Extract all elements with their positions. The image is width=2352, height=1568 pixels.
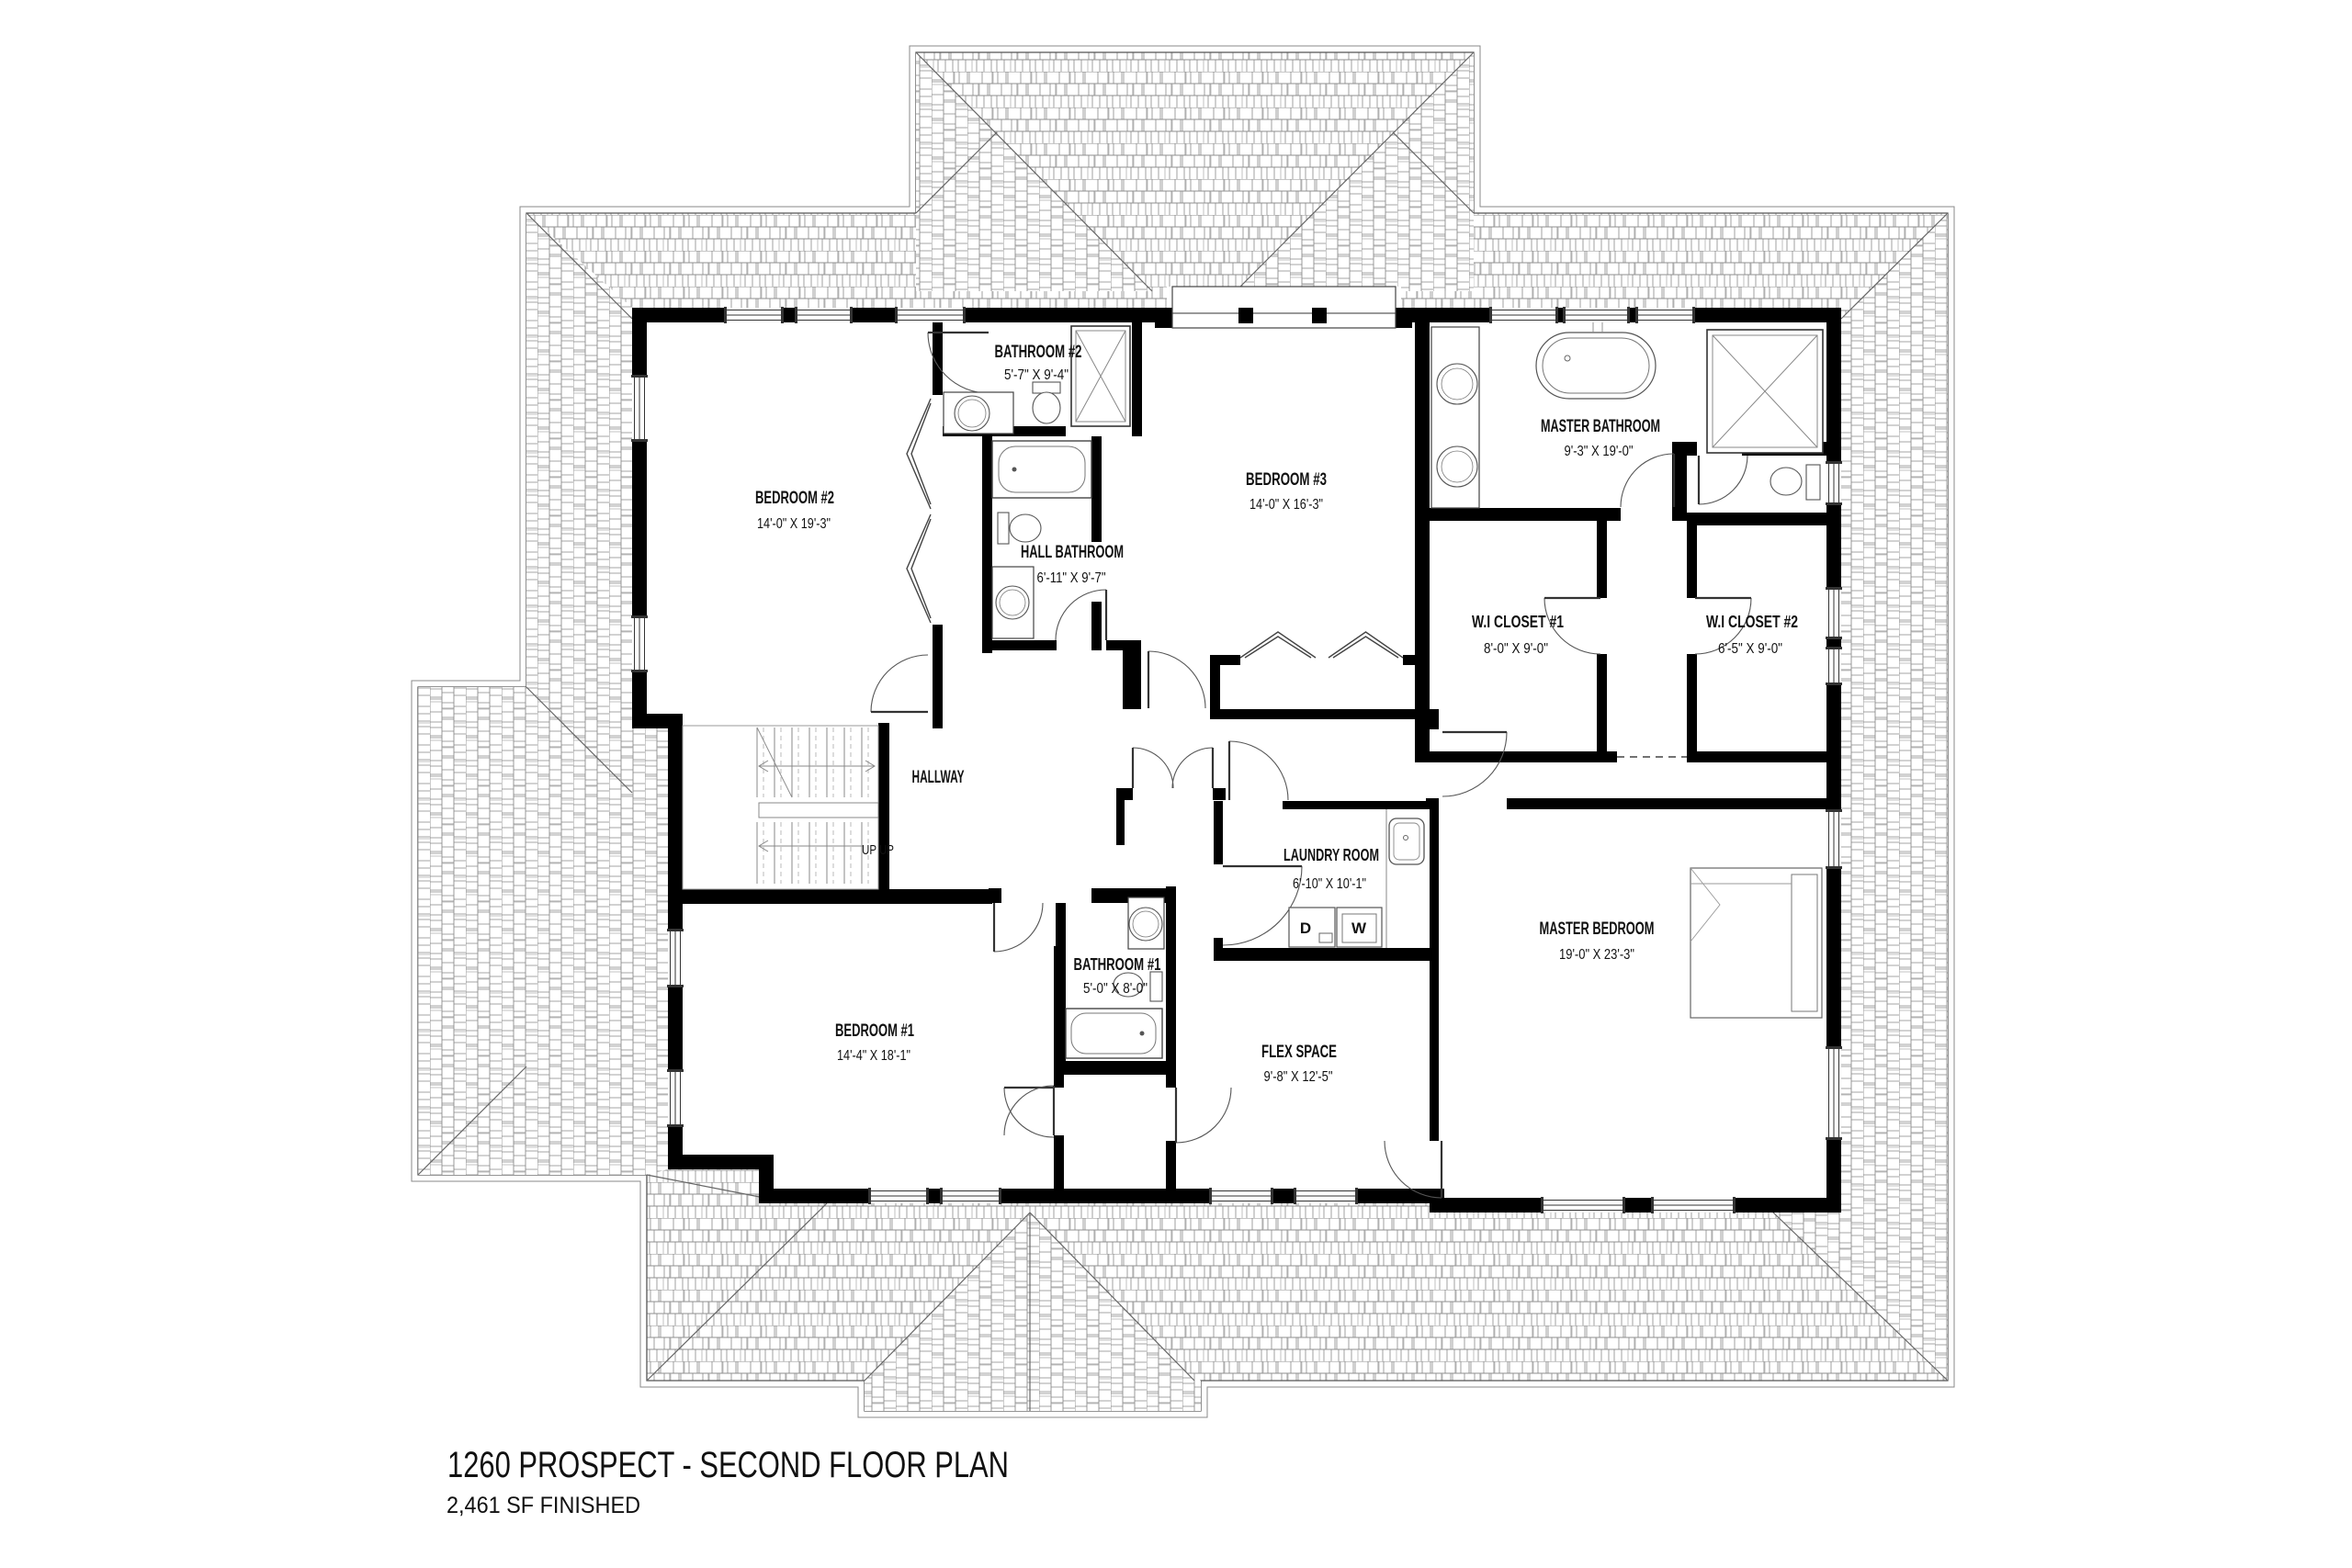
svg-text:8'-0" X 9'-0": 8'-0" X 9'-0" [1484, 641, 1548, 657]
svg-text:6'-10" X 10'-1": 6'-10" X 10'-1" [1293, 876, 1366, 892]
svg-text:5'-7" X 9'-4": 5'-7" X 9'-4" [1004, 367, 1069, 383]
svg-text:BATHROOM #2: BATHROOM #2 [995, 343, 1082, 362]
svg-text:BEDROOM #2: BEDROOM #2 [755, 489, 834, 508]
svg-text:9'-8" X 12'-5": 9'-8" X 12'-5" [1264, 1069, 1333, 1085]
svg-text:UP UP: UP UP [862, 842, 894, 858]
svg-text:6'-5" X 9'-0": 6'-5" X 9'-0" [1718, 641, 1782, 657]
svg-text:MASTER BEDROOM: MASTER BEDROOM [1540, 919, 1655, 939]
svg-text:FLEX SPACE: FLEX SPACE [1261, 1043, 1337, 1062]
svg-text:14'-0" X 16'-3": 14'-0" X 16'-3" [1249, 497, 1323, 513]
svg-text:9'-3" X 19'-0": 9'-3" X 19'-0" [1565, 444, 1634, 459]
svg-text:MASTER BATHROOM: MASTER BATHROOM [1541, 417, 1660, 436]
svg-text:6'-11" X 9'-7": 6'-11" X 9'-7" [1037, 570, 1106, 586]
svg-text:W: W [1351, 919, 1367, 937]
svg-text:19'-0" X 23'-3": 19'-0" X 23'-3" [1559, 947, 1634, 963]
svg-text:HALL BATHROOM: HALL BATHROOM [1021, 543, 1124, 562]
svg-text:W.I CLOSET #2: W.I CLOSET #2 [1706, 613, 1798, 631]
svg-text:BEDROOM #1: BEDROOM #1 [835, 1021, 914, 1041]
svg-text:BATHROOM #1: BATHROOM #1 [1074, 955, 1161, 974]
svg-text:LAUNDRY ROOM: LAUNDRY ROOM [1283, 846, 1379, 864]
svg-text:D: D [1300, 919, 1311, 937]
svg-text:W.I CLOSET #1: W.I CLOSET #1 [1472, 613, 1564, 631]
svg-text:2,461 SF FINISHED: 2,461 SF FINISHED [447, 1493, 640, 1518]
svg-text:14'-4" X 18'-1": 14'-4" X 18'-1" [837, 1048, 910, 1064]
svg-text:1260 PROSPECT - SECOND FLOOR P: 1260 PROSPECT - SECOND FLOOR PLAN [447, 1445, 1009, 1485]
svg-text:HALLWAY: HALLWAY [912, 768, 965, 787]
svg-text:14'-0" X 19'-3": 14'-0" X 19'-3" [757, 516, 831, 532]
svg-text:5'-0" X 8'-0": 5'-0" X 8'-0" [1083, 981, 1148, 997]
svg-text:BEDROOM #3: BEDROOM #3 [1246, 470, 1327, 490]
